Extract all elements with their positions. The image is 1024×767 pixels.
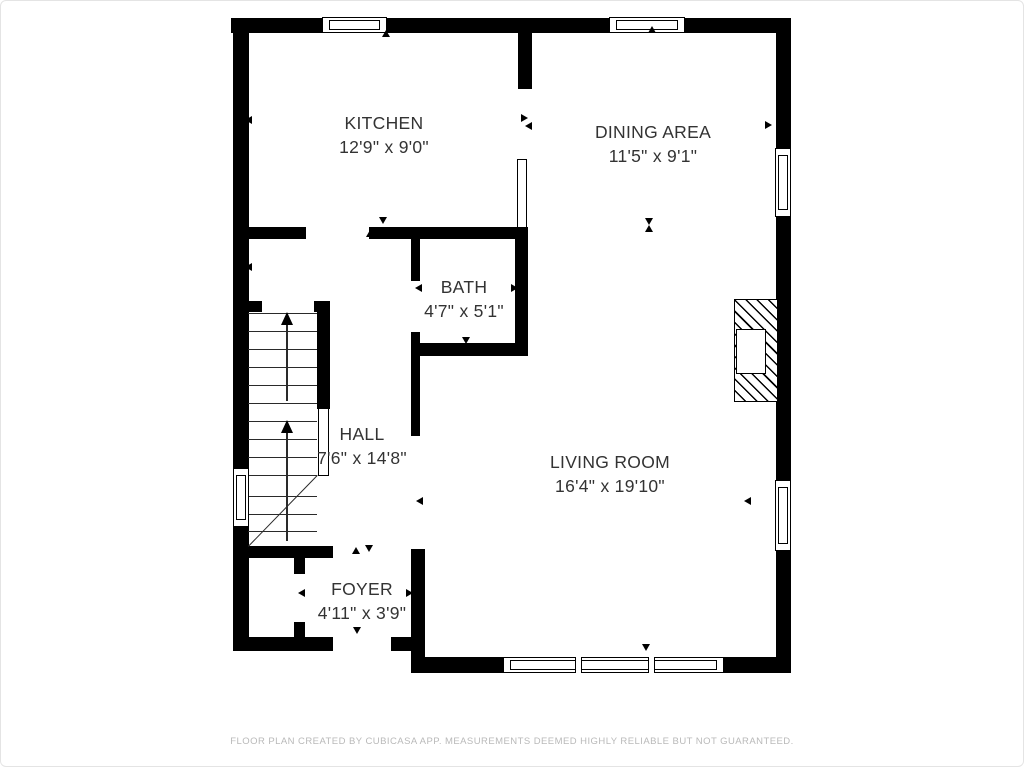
door-kitchen-bath-leaf	[517, 159, 527, 228]
room-label-foyer: FOYER 4'11" x 3'9"	[318, 577, 407, 625]
opening-marker-right	[765, 121, 772, 129]
room-dims-foyer: 4'11" x 3'9"	[318, 601, 407, 625]
window-glass	[778, 487, 788, 544]
wall-closet-right-upper	[294, 558, 305, 574]
room-label-kitchen: KITCHEN 12'9" x 9'0"	[339, 111, 429, 159]
wall-hall-right	[411, 355, 420, 436]
opening-marker-right	[521, 114, 528, 122]
floorplan-screenshot: KITCHEN 12'9" x 9'0" DINING AREA 11'5" x…	[0, 0, 1024, 767]
opening-marker-up	[645, 225, 653, 232]
wall-bath-top	[369, 227, 528, 239]
stair-tread	[248, 331, 317, 332]
opening-marker-down	[353, 627, 361, 634]
room-dims-kitchen: 12'9" x 9'0"	[339, 135, 429, 159]
wall-living-left	[411, 549, 425, 673]
window-glass	[236, 475, 246, 520]
opening-marker-up	[461, 229, 469, 236]
opening-marker-down	[379, 217, 387, 224]
stair-up-arrow	[281, 420, 293, 433]
room-label-bath: BATH 4'7" x 5'1"	[424, 275, 504, 323]
opening-marker-left	[744, 497, 751, 505]
room-label-dining-area: DINING AREA 11'5" x 9'1"	[595, 120, 711, 168]
room-dims-hall: 7'6" x 14'8"	[317, 446, 407, 470]
room-name-foyer: FOYER	[318, 577, 407, 601]
window-glass	[510, 660, 717, 670]
stair-tread	[248, 349, 317, 350]
opening-marker-right	[406, 589, 413, 597]
room-name-kitchen: KITCHEN	[339, 111, 429, 135]
window-mullion	[575, 657, 582, 673]
stair-tread	[248, 496, 317, 497]
wall-foyer-bottom-left	[233, 637, 333, 651]
opening-marker-left	[416, 497, 423, 505]
opening-marker-up	[382, 30, 390, 37]
stair-arrow-stem	[286, 325, 288, 401]
fireplace	[734, 299, 778, 402]
stair-tread	[248, 457, 317, 458]
wall-bath-bottom	[411, 343, 528, 356]
disclaimer-text: FLOOR PLAN CREATED BY CUBICASA APP. MEAS…	[1, 736, 1023, 747]
wall-bath-left-upper	[411, 239, 420, 281]
opening-marker-down	[462, 337, 470, 344]
opening-marker-down	[642, 644, 650, 651]
wall-stair-stub-left	[248, 301, 262, 312]
opening-marker-left	[415, 284, 422, 292]
wall-stair-right	[317, 301, 330, 409]
room-name-bath: BATH	[424, 275, 504, 299]
window-glass	[329, 20, 380, 30]
window-glass	[616, 20, 678, 30]
room-name-dining-area: DINING AREA	[595, 120, 711, 144]
opening-marker-up	[352, 547, 360, 554]
wall-exterior-top	[231, 18, 791, 33]
window-living-bottom	[503, 657, 724, 673]
room-label-hall: HALL 7'6" x 14'8"	[317, 422, 407, 470]
stair-tread	[248, 475, 317, 476]
stair-arrow-stem	[286, 433, 288, 541]
window-living-right	[775, 480, 791, 551]
stair-winder-line	[248, 475, 318, 547]
fireplace-firebox	[736, 329, 766, 374]
room-name-living-room: LIVING ROOM	[550, 450, 670, 474]
opening-marker-right	[511, 284, 518, 292]
opening-marker-up	[648, 26, 656, 33]
room-dims-living-room: 16'4" x 19'10"	[550, 474, 670, 498]
opening-marker-left	[245, 116, 252, 124]
stair-tread	[248, 439, 317, 440]
room-dims-bath: 4'7" x 5'1"	[424, 299, 504, 323]
window-glass	[778, 155, 788, 210]
stair-up-arrow	[281, 312, 293, 325]
stair-tread	[248, 403, 317, 404]
wall-stair-bottom	[248, 546, 333, 558]
opening-marker-down	[365, 545, 373, 552]
wall-closet-right-lower	[294, 622, 305, 638]
stair-tread	[248, 514, 317, 515]
wall-exterior-right	[776, 18, 791, 673]
opening-marker-left	[525, 122, 532, 130]
opening-marker-left	[245, 263, 252, 271]
stair-tread	[248, 531, 317, 532]
floor-plan: KITCHEN 12'9" x 9'0" DINING AREA 11'5" x…	[1, 1, 1023, 766]
window-mullion	[648, 657, 655, 673]
opening-marker-down	[645, 218, 653, 225]
room-dims-dining-area: 11'5" x 9'1"	[595, 144, 711, 168]
window-hall-left	[233, 468, 249, 527]
window-dining-right	[775, 148, 791, 217]
window-kitchen-top	[322, 17, 387, 33]
wall-hall-top	[246, 227, 306, 239]
stair-tread	[248, 367, 317, 368]
room-label-living-room: LIVING ROOM 16'4" x 19'10"	[550, 450, 670, 498]
stair-tread	[248, 385, 317, 386]
wall-exterior-left	[233, 18, 249, 651]
room-name-hall: HALL	[317, 422, 407, 446]
opening-marker-up	[366, 230, 374, 237]
wall-kitchen-dining-stub	[518, 31, 532, 89]
opening-marker-left	[298, 589, 305, 597]
window-dining-top	[609, 17, 685, 33]
